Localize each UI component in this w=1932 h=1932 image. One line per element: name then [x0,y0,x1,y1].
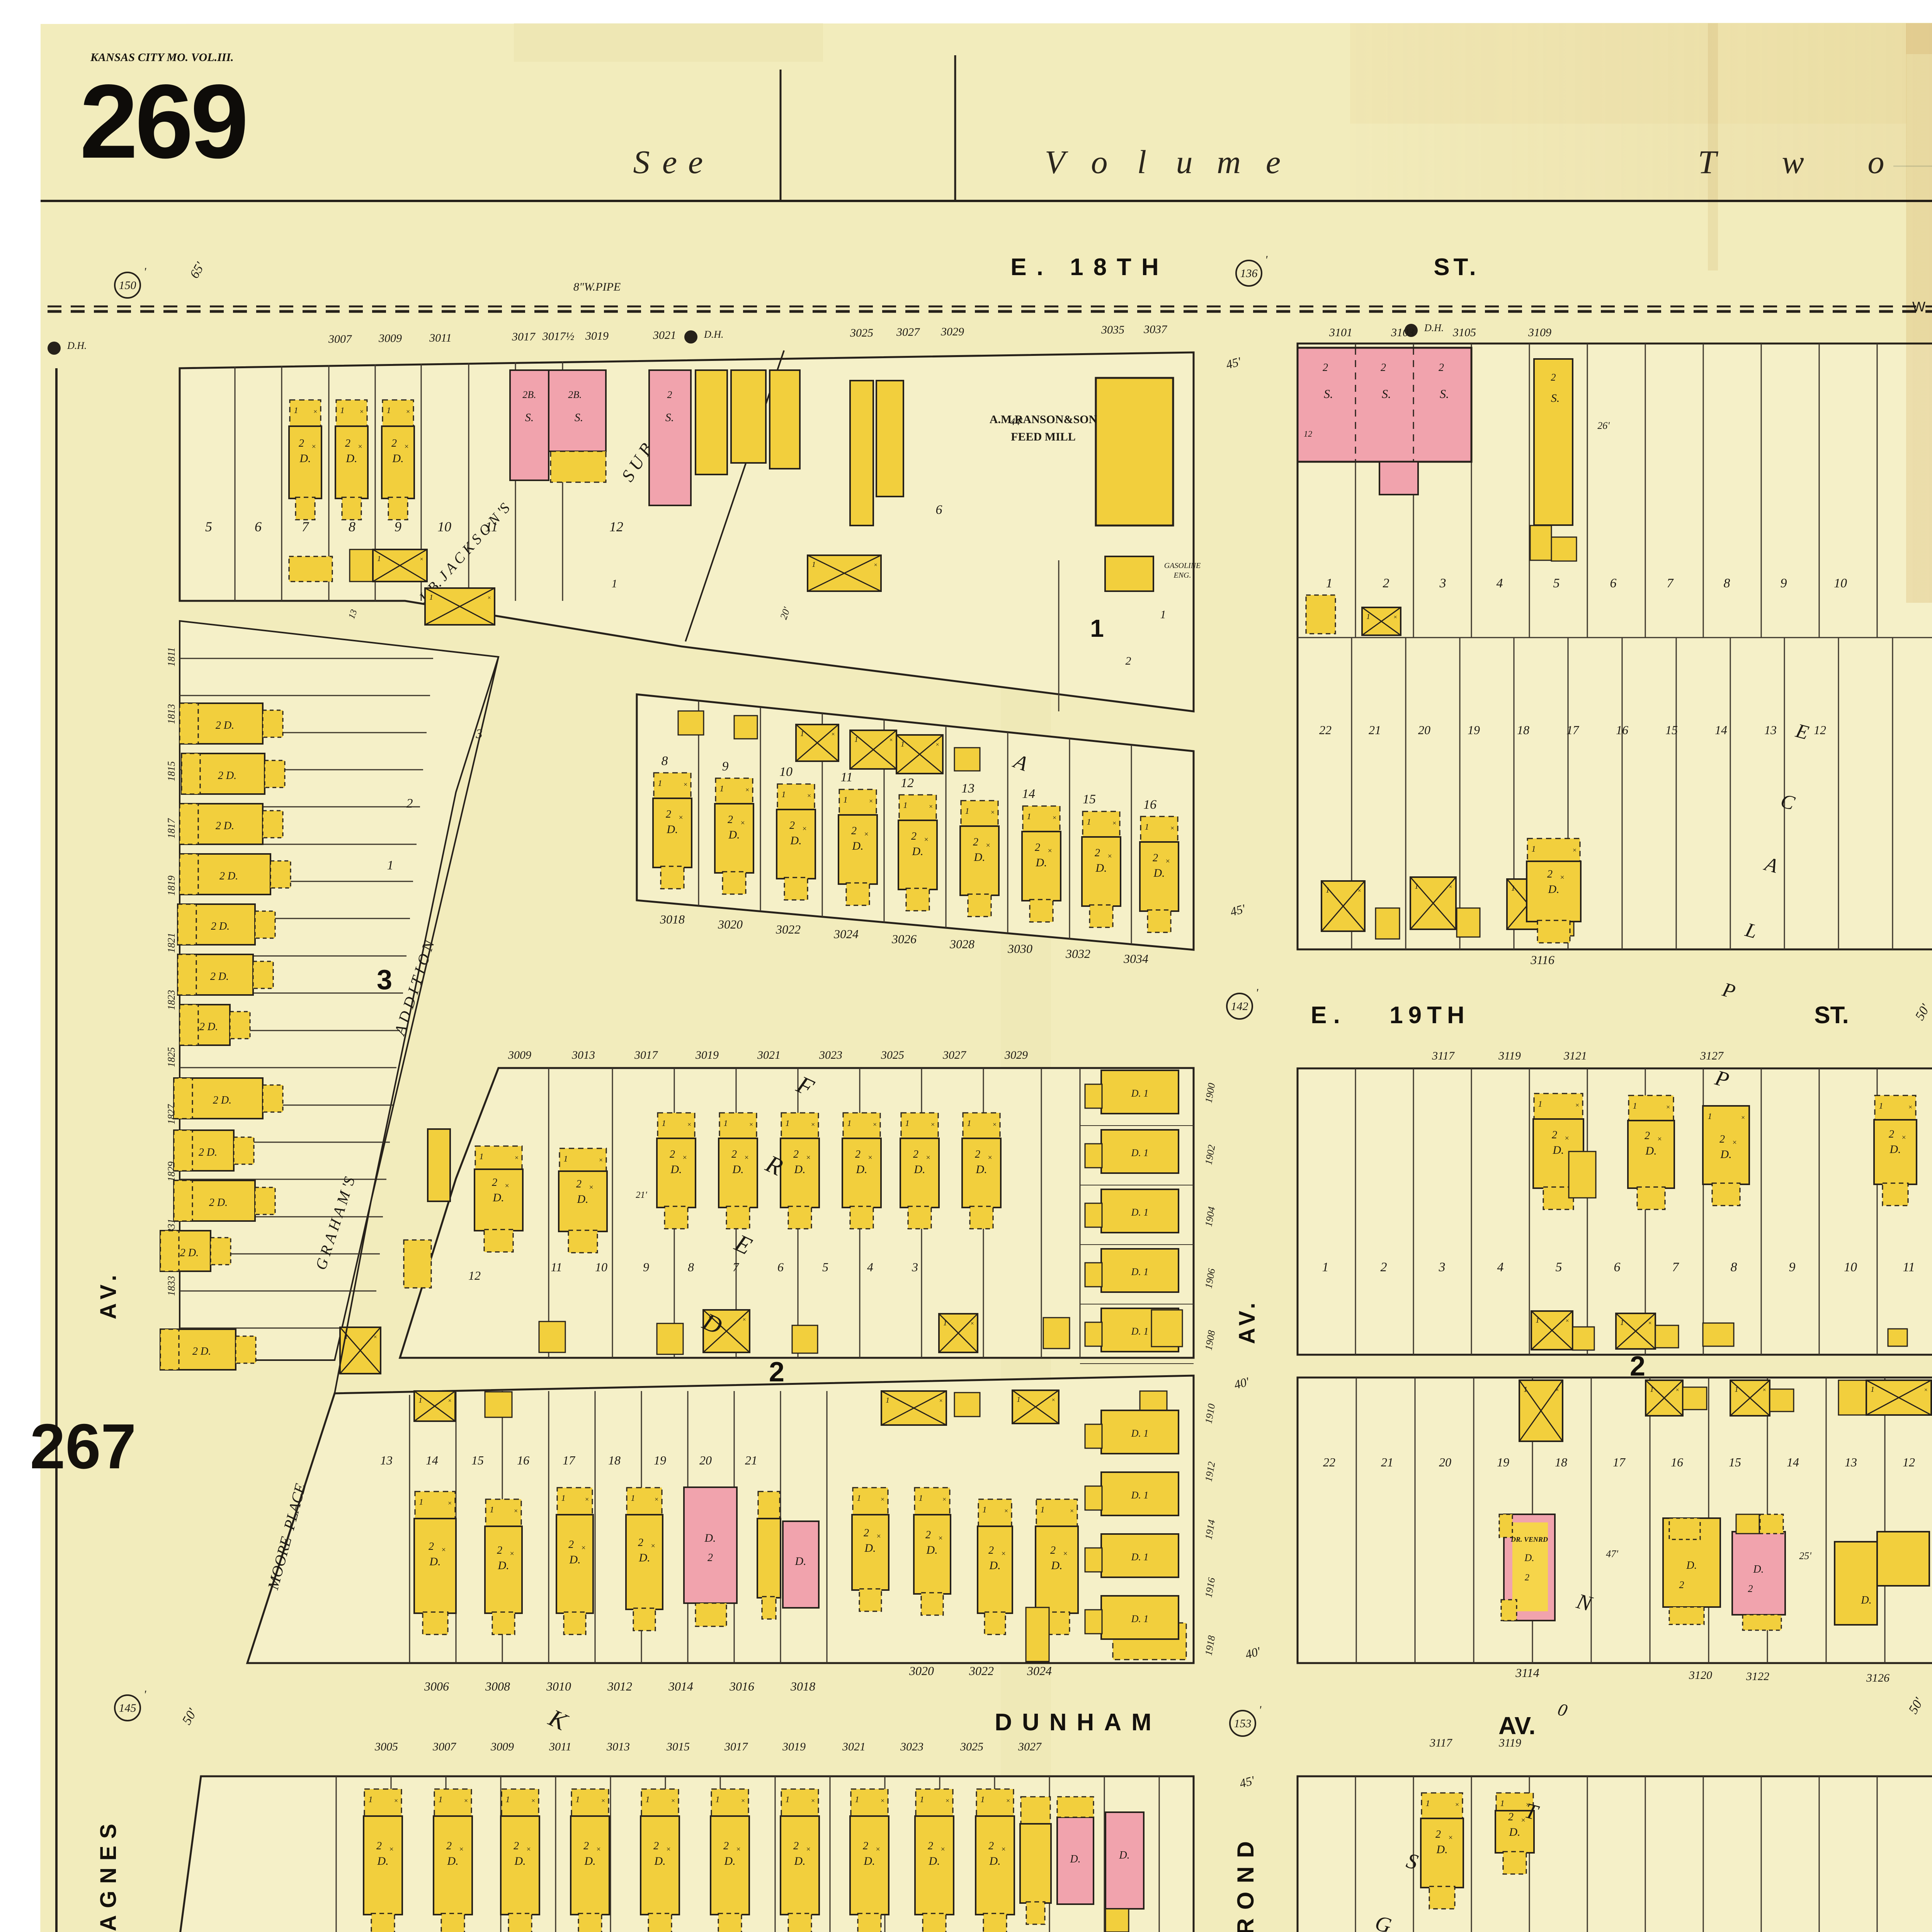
svg-text:×: × [514,1154,519,1162]
svg-text:6: 6 [1614,1260,1621,1274]
svg-text:4: 4 [867,1260,873,1274]
svg-text:1: 1 [658,778,662,788]
svg-text:3015: 3015 [666,1740,690,1753]
svg-text:26': 26' [1597,420,1610,431]
svg-text:9: 9 [395,519,401,534]
svg-text:×: × [929,803,933,810]
svg-text:×: × [864,830,869,838]
svg-text:2: 2 [988,1840,994,1852]
svg-text:12: 12 [1304,429,1312,439]
svg-text:D.: D. [654,1855,665,1867]
svg-text:11: 11 [840,770,852,784]
svg-text:S.: S. [665,411,674,424]
svg-text:D.: D. [852,840,863,852]
svg-text:GASOLINE: GASOLINE [1164,561,1201,570]
svg-text:12: 12 [468,1269,481,1282]
svg-text:3027: 3027 [1018,1740,1042,1753]
svg-text:e: e [662,143,677,180]
svg-text:10: 10 [437,519,451,534]
svg-text:×: × [889,737,893,743]
svg-text:×: × [678,813,684,822]
svg-text:3007: 3007 [432,1740,457,1753]
svg-text:D.: D. [1720,1148,1731,1161]
svg-text:17: 17 [1566,723,1580,737]
svg-text:3035: 3035 [1101,323,1124,336]
svg-text:×: × [1762,1387,1767,1393]
svg-text:D.: D. [1548,883,1559,896]
svg-text:×: × [990,808,995,816]
svg-text:2: 2 [446,1840,452,1852]
svg-text:3011: 3011 [549,1740,571,1753]
svg-text:13: 13 [1764,723,1777,737]
svg-text:2: 2 [731,1148,737,1160]
svg-text:AGNES: AGNES [96,1817,121,1931]
svg-text:1813: 1813 [166,704,177,724]
svg-text:2B.: 2B. [568,389,582,400]
svg-text:3016: 3016 [729,1679,754,1693]
svg-text:6: 6 [936,503,942,517]
svg-text:1: 1 [1650,1385,1654,1394]
svg-text:16: 16 [1671,1455,1683,1469]
svg-text:×: × [447,1499,452,1507]
svg-text:1819: 1819 [166,876,177,896]
svg-text:D.: D. [1686,1560,1697,1571]
svg-text:22: 22 [1323,1455,1335,1469]
svg-text:1: 1 [981,1794,985,1804]
svg-text:25': 25' [1799,1550,1811,1561]
svg-text:2 D.: 2 D. [199,1146,217,1158]
svg-text:1825: 1825 [166,1047,177,1067]
svg-text:D.: D. [989,1855,1000,1867]
svg-text:×: × [357,442,363,451]
svg-text:1: 1 [1735,1385,1738,1394]
svg-text:D.: D. [1509,1826,1520,1838]
svg-text:×: × [1560,873,1565,882]
svg-text:WALROND: WALROND [1233,1833,1259,1932]
svg-text:×: × [1565,1318,1570,1324]
svg-text:D.: D. [638,1551,650,1564]
svg-text:ENG.: ENG. [1173,571,1191,580]
svg-text:2 D.: 2 D. [216,820,234,832]
svg-text:×: × [1648,1320,1652,1327]
svg-text:8: 8 [1724,576,1730,590]
svg-text:D. 1: D. 1 [1131,1551,1149,1563]
svg-text:×: × [970,1320,975,1327]
svg-text:13: 13 [1845,1455,1857,1469]
svg-text:1: 1 [812,560,816,569]
svg-text:7: 7 [733,1260,740,1274]
svg-text:3109: 3109 [1528,326,1551,339]
svg-text:12: 12 [1814,723,1826,737]
svg-text:3020: 3020 [909,1664,934,1678]
svg-text:2 D.: 2 D. [216,719,234,731]
svg-text:1: 1 [506,1794,510,1804]
svg-text:1821: 1821 [166,933,177,953]
svg-text:19: 19 [654,1453,666,1467]
svg-text:3032: 3032 [1065,947,1090,961]
svg-text:2: 2 [1383,576,1389,590]
svg-text:D.: D. [704,1532,716,1544]
svg-text:21: 21 [745,1453,757,1467]
svg-text:D.: D. [1095,862,1107,874]
svg-text:3026: 3026 [891,932,917,946]
svg-text:×: × [504,1182,510,1190]
svg-text:5: 5 [822,1260,828,1274]
svg-text:×: × [1165,857,1170,866]
svg-text:1: 1 [800,730,804,738]
svg-text:20: 20 [699,1453,712,1467]
svg-text:D.: D. [794,1555,806,1568]
svg-text:×: × [1393,614,1398,621]
svg-text:18: 18 [1517,723,1529,737]
svg-text:1: 1 [886,1396,889,1405]
svg-text:AV.: AV. [96,1269,121,1319]
svg-text:2: 2 [851,825,857,837]
svg-text:1: 1 [294,405,298,415]
svg-text:E. 18TH: E. 18TH [1010,254,1168,281]
svg-text:×: × [867,1153,873,1162]
svg-text:×: × [650,1542,656,1550]
svg-text:D.: D. [1645,1145,1656,1157]
svg-text:×: × [939,1398,943,1404]
svg-text:×: × [1001,1845,1006,1854]
svg-text:l: l [1137,143,1146,180]
svg-text:D.: D. [377,1855,388,1867]
svg-text:×: × [1657,1135,1662,1143]
svg-text:×: × [1357,888,1362,894]
svg-text:142: 142 [1231,1000,1248,1013]
svg-text:3018: 3018 [660,912,685,926]
svg-text:1833: 1833 [166,1276,177,1296]
svg-text:×: × [420,556,424,563]
svg-text:1: 1 [576,1794,580,1804]
svg-text:1: 1 [418,1396,422,1405]
svg-text:8: 8 [349,519,355,534]
svg-text:3029: 3029 [940,325,964,338]
svg-text:3018: 3018 [790,1679,815,1693]
svg-text:267: 267 [30,1411,136,1482]
svg-text:FEED MILL: FEED MILL [1011,430,1076,443]
svg-text:3122: 3122 [1746,1670,1769,1683]
svg-text:2: 2 [492,1177,497,1189]
svg-text:2: 2 [391,437,397,449]
svg-text:1: 1 [490,1505,494,1514]
svg-text:×: × [459,1845,464,1854]
svg-text:2: 2 [1645,1130,1650,1142]
svg-text:1: 1 [1366,612,1370,621]
svg-text:×: × [869,797,873,805]
svg-text:E .: E . [1311,1002,1340,1029]
svg-text:×: × [806,1153,811,1162]
svg-text:D.: D. [975,1163,987,1176]
svg-text:2: 2 [670,1148,675,1160]
svg-text:3022: 3022 [969,1664,994,1678]
svg-text:1823: 1823 [166,990,177,1010]
svg-text:D.: D. [299,452,311,465]
svg-text:o: o [1091,143,1108,180]
svg-text:2: 2 [345,437,350,449]
svg-text:1: 1 [480,1151,484,1161]
svg-text:3027: 3027 [942,1049,967,1061]
svg-text:D. 1: D. 1 [1131,1266,1149,1277]
svg-text:3126: 3126 [1866,1672,1889,1684]
svg-text:2: 2 [723,1840,729,1852]
svg-text:3025: 3025 [881,1049,904,1061]
svg-text:×: × [682,1153,687,1162]
svg-text:2: 2 [1050,1544,1056,1556]
svg-text:269: 269 [80,63,246,180]
svg-text:D.: D. [569,1553,580,1566]
svg-text:×: × [1051,1397,1056,1403]
svg-text:D.: D. [728,828,740,841]
svg-text:2: 2 [576,1178,582,1190]
svg-text:': ' [1256,986,1259,999]
svg-text:2: 2 [928,1840,933,1852]
svg-text:2 D.: 2 D. [199,1021,218,1033]
svg-text:×: × [1732,1138,1737,1147]
svg-text:2: 2 [568,1539,574,1551]
svg-text:3120: 3120 [1689,1669,1712,1682]
svg-text:×: × [683,781,688,788]
svg-text:D.: D. [863,1855,875,1867]
svg-text:ST.: ST. [1434,254,1480,281]
svg-text:2: 2 [864,1527,869,1539]
svg-text:15: 15 [1729,1455,1741,1469]
svg-text:D.: D. [864,1542,876,1554]
svg-text:2 D.: 2 D. [180,1247,199,1259]
svg-text:×: × [741,1797,745,1804]
svg-text:20: 20 [1439,1455,1451,1469]
svg-text:m: m [1217,143,1241,180]
svg-text:2: 2 [707,1552,713,1564]
svg-text:18: 18 [608,1453,621,1467]
svg-text:1: 1 [1326,576,1333,590]
svg-text:3010: 3010 [546,1679,571,1693]
svg-text:×: × [811,1121,815,1128]
svg-text:×: × [671,1797,675,1804]
svg-text:3: 3 [912,1260,918,1274]
svg-text:D.: D. [1035,856,1047,869]
svg-text:×: × [531,1797,536,1804]
svg-text:×: × [1908,1103,1913,1111]
svg-text:D.: D. [1119,1849,1129,1861]
svg-text:D.: D. [794,1163,805,1176]
svg-text:15: 15 [1665,723,1678,737]
svg-text:×: × [1572,846,1577,854]
svg-text:21: 21 [1369,723,1381,737]
svg-text:15: 15 [1083,792,1096,806]
svg-text:D.: D. [926,1544,937,1556]
svg-text:1: 1 [1322,1260,1329,1274]
svg-text:×: × [509,1549,515,1558]
svg-text:1: 1 [612,577,617,590]
svg-text:9: 9 [643,1260,649,1274]
svg-text:×: × [1070,1507,1074,1515]
svg-text:D. 1: D. 1 [1131,1147,1149,1158]
svg-text:D. 1: D. 1 [1131,1428,1149,1439]
svg-text:8: 8 [662,754,668,768]
svg-text:3011: 3011 [429,332,452,344]
svg-text:3119: 3119 [1498,1049,1521,1062]
svg-text:V: V [1045,143,1068,180]
svg-text:3023: 3023 [900,1740,923,1753]
svg-text:3019: 3019 [585,330,609,342]
svg-text:1: 1 [1620,1318,1624,1327]
svg-text:2: 2 [1889,1128,1894,1140]
svg-text:3009: 3009 [490,1740,514,1753]
svg-text:2 D.: 2 D. [209,1197,228,1209]
svg-text:1: 1 [786,1118,790,1128]
svg-text:D.: D. [577,1193,588,1206]
svg-text:D.: D. [913,1163,925,1176]
svg-text:AV.: AV. [1235,1299,1260,1344]
svg-text:1: 1 [419,1497,423,1507]
svg-text:5: 5 [1556,1260,1562,1274]
svg-text:×: × [464,1797,468,1804]
svg-text:16: 16 [1616,723,1628,737]
svg-text:19TH: 19TH [1389,1002,1470,1029]
svg-text:5: 5 [205,519,212,534]
svg-text:145: 145 [119,1702,136,1714]
svg-text:2: 2 [514,1840,519,1852]
svg-text:3009: 3009 [378,332,402,345]
svg-text:2: 2 [913,1148,918,1160]
svg-text:×: × [880,1495,885,1503]
svg-text:D. 1: D. 1 [1131,1613,1149,1624]
svg-text:AV.: AV. [1498,1712,1536,1740]
svg-text:16: 16 [1143,798,1156,812]
svg-text:×: × [311,442,316,451]
svg-text:D.: D. [670,1163,682,1176]
svg-text:1: 1 [340,405,345,415]
svg-text:D.: D. [928,1855,940,1867]
svg-text:13: 13 [961,781,975,796]
svg-text:S: S [633,143,650,180]
svg-text:2: 2 [1381,1260,1387,1274]
svg-text:2: 2 [925,1529,931,1541]
svg-text:×: × [1107,852,1112,861]
svg-text:×: × [1448,1833,1453,1842]
svg-text:47': 47' [1606,1548,1618,1560]
svg-text:S.: S. [575,411,583,424]
svg-text:2: 2 [1679,1579,1684,1590]
svg-text:3020: 3020 [718,917,743,931]
svg-text:×: × [940,1845,946,1854]
svg-text:10: 10 [1844,1260,1857,1274]
svg-text:D.: D. [1436,1843,1447,1856]
svg-text:×: × [373,1334,378,1340]
svg-text:×: × [992,1121,997,1128]
svg-text:3029: 3029 [1004,1049,1028,1061]
svg-text:3: 3 [377,964,392,995]
svg-text:1: 1 [1536,1316,1539,1325]
svg-text:D.: D. [1753,1563,1764,1575]
svg-text:S.: S. [1382,387,1391,401]
svg-text:D.: D. [447,1855,458,1867]
svg-text:2: 2 [1525,1573,1529,1583]
svg-text:1: 1 [387,405,391,415]
svg-text:×: × [1449,884,1453,890]
svg-text:10: 10 [595,1260,607,1274]
svg-text:21': 21' [636,1190,647,1200]
svg-text:D. 1: D. 1 [1131,1207,1149,1218]
svg-text:D.: D. [732,1163,743,1176]
svg-text:1: 1 [1041,1505,1045,1514]
svg-text:3037: 3037 [1143,323,1168,336]
svg-text:3013: 3013 [571,1049,595,1061]
svg-text:×: × [742,1316,747,1323]
svg-text:1: 1 [1326,886,1330,895]
svg-text:1: 1 [1426,1798,1430,1808]
svg-text:3021: 3021 [757,1049,781,1061]
svg-text:KANSAS CITY MO. VOL.III.: KANSAS CITY MO. VOL.III. [90,51,234,64]
svg-text:7: 7 [1672,1260,1680,1274]
svg-text:D.: D. [1552,1144,1564,1156]
svg-text:×: × [945,1797,950,1804]
svg-text:1: 1 [857,1493,861,1503]
svg-text:1: 1 [943,1319,947,1327]
svg-text:×: × [811,1797,815,1804]
svg-text:2: 2 [666,808,671,820]
svg-text:6: 6 [777,1260,784,1274]
svg-text:×: × [1006,1797,1010,1804]
svg-text:1: 1 [1538,1099,1543,1109]
svg-text:×: × [394,1797,398,1804]
svg-text:3014: 3014 [668,1679,693,1693]
svg-text:×: × [448,1398,452,1404]
svg-text:2: 2 [376,1840,382,1852]
svg-text:2: 2 [911,830,917,842]
svg-text:9: 9 [722,759,729,774]
svg-text:×: × [880,1797,885,1804]
svg-text:×: × [1001,1549,1006,1558]
svg-text:×: × [1666,1103,1670,1111]
svg-text:14: 14 [1022,787,1035,801]
svg-text:D.: D. [514,1855,526,1867]
svg-text:D.: D. [497,1559,509,1572]
svg-text:1: 1 [967,1118,971,1128]
svg-text:3007: 3007 [328,333,352,345]
svg-text:2: 2 [789,820,795,832]
svg-text:×: × [1112,819,1117,827]
svg-text:×: × [923,835,929,844]
svg-text:D.: D. [392,452,403,465]
svg-text:D.: D. [1051,1559,1062,1572]
svg-text:1: 1 [646,1794,650,1804]
svg-text:8"W.PIPE: 8"W.PIPE [573,281,621,293]
svg-text:3114: 3114 [1515,1666,1539,1680]
svg-text:22: 22 [1319,723,1332,737]
svg-text:D.: D. [912,845,923,858]
svg-text:×: × [807,792,811,799]
svg-text:2: 2 [497,1544,502,1556]
svg-text:1: 1 [844,795,848,804]
svg-text:2 D.: 2 D. [213,1094,231,1106]
svg-text:×: × [740,819,745,827]
svg-text:4: 4 [1497,576,1503,590]
svg-text:1: 1 [369,1794,373,1804]
svg-text:13: 13 [380,1453,393,1467]
svg-text:3009: 3009 [508,1049,531,1061]
svg-text:2: 2 [1126,655,1131,667]
svg-text:D.: D. [584,1855,595,1867]
svg-text:2: 2 [1153,852,1158,864]
svg-text:×: × [581,1544,586,1552]
svg-text:×: × [1004,1507,1009,1515]
svg-text:3034: 3034 [1123,952,1148,966]
svg-text:2: 2 [728,814,733,826]
svg-text:2: 2 [667,389,672,400]
